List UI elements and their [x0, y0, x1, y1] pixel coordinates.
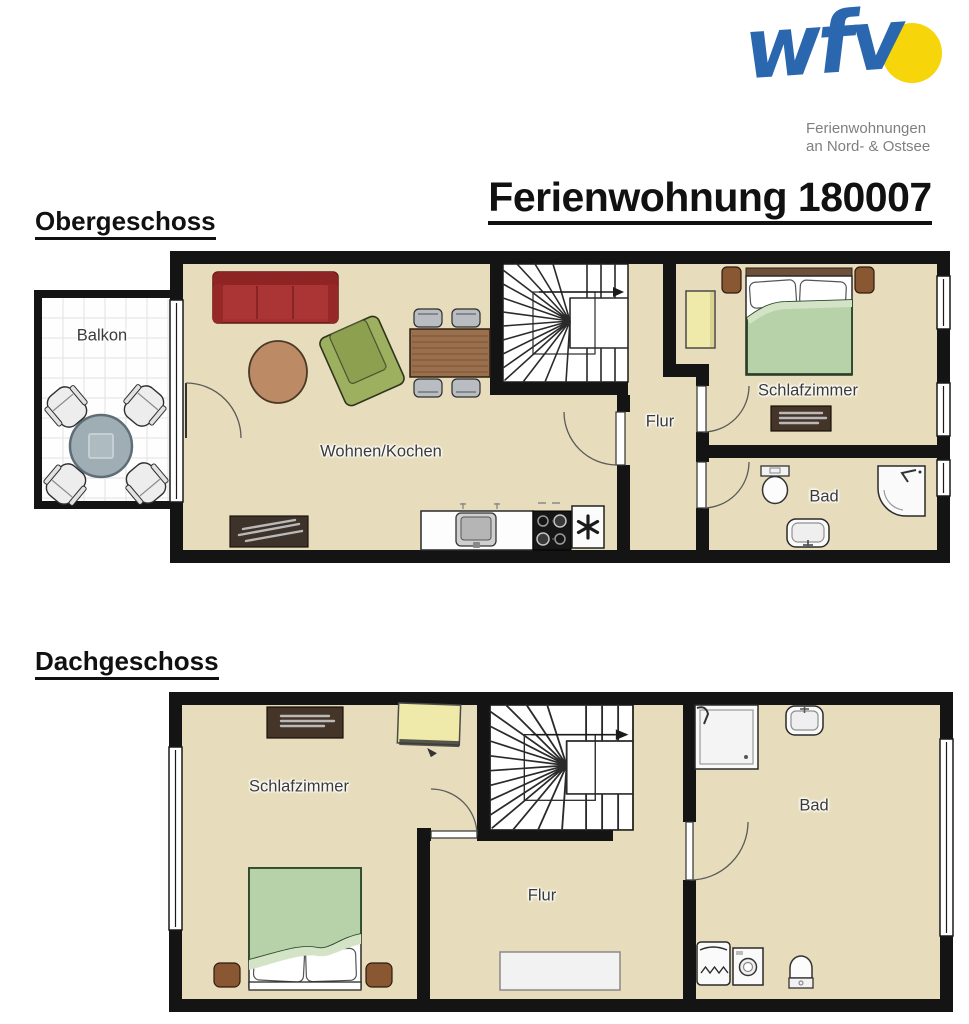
- page-title: Ferienwohnung 180007: [470, 174, 950, 221]
- stairs-icon: [490, 705, 633, 830]
- laundry-basket-icon: [697, 942, 730, 985]
- balcony: [34, 290, 184, 511]
- bed-icon: [746, 268, 852, 375]
- dresser-icon: [267, 707, 343, 738]
- sink-icon: [787, 519, 829, 548]
- room-label-balkon: Balkon: [77, 327, 127, 346]
- obergeschoss-plan: [34, 251, 950, 563]
- window-icon: [937, 276, 950, 496]
- room-label-wohnen-kochen: Wohnen/Kochen: [320, 443, 442, 462]
- hallway-chest-icon: [500, 952, 620, 990]
- bed-icon: [249, 868, 361, 990]
- toilet-icon: [761, 466, 789, 504]
- room-label-flur-og: Flur: [646, 413, 674, 432]
- room-label-bad-og: Bad: [809, 488, 838, 507]
- logo-tagline-line2: an Nord- & Ostsee: [806, 138, 930, 156]
- room-label-schlafzimmer-dg: Schlafzimmer: [249, 778, 349, 797]
- room-label-schlafzimmer-og: Schlafzimmer: [758, 382, 858, 401]
- sofa-icon: [213, 272, 338, 323]
- stove-icon: [533, 511, 571, 550]
- kitchen-sink-icon: [456, 513, 496, 548]
- shower-icon: [695, 705, 758, 769]
- nightstand-icon: [722, 267, 741, 293]
- sink-icon: [786, 705, 823, 735]
- balcony-door-window-icon: [170, 300, 183, 502]
- toilet-icon: [789, 956, 813, 988]
- room-label-flur-dg: Flur: [528, 887, 556, 906]
- room-label-bad-dg: Bad: [799, 797, 828, 816]
- nightstand-icon: [214, 963, 240, 987]
- stairs-icon: [503, 264, 628, 382]
- fridge-icon: [572, 506, 604, 548]
- tv-board-icon: [230, 516, 308, 547]
- logo-brand: wfv: [741, 0, 903, 91]
- dresser-icon: [771, 406, 831, 431]
- wardrobe-icon: [686, 291, 715, 348]
- dachgeschoss-plan: [169, 692, 953, 1012]
- floorplan-page: wfv Ferienwohnungen an Nord- & Ostsee Fe…: [0, 0, 969, 1024]
- floor-label-obergeschoss: Obergeschoss: [35, 206, 216, 237]
- nightstand-icon: [855, 267, 874, 293]
- logo-tagline: Ferienwohnungen an Nord- & Ostsee: [806, 120, 930, 156]
- logo-tagline-line1: Ferienwohnungen: [806, 120, 930, 138]
- balcony-table-icon: [70, 415, 132, 477]
- floor-label-dachgeschoss: Dachgeschoss: [35, 646, 219, 677]
- washing-machine-icon: [733, 948, 763, 985]
- nightstand-icon: [366, 963, 392, 987]
- coffee-table-icon: [249, 341, 307, 403]
